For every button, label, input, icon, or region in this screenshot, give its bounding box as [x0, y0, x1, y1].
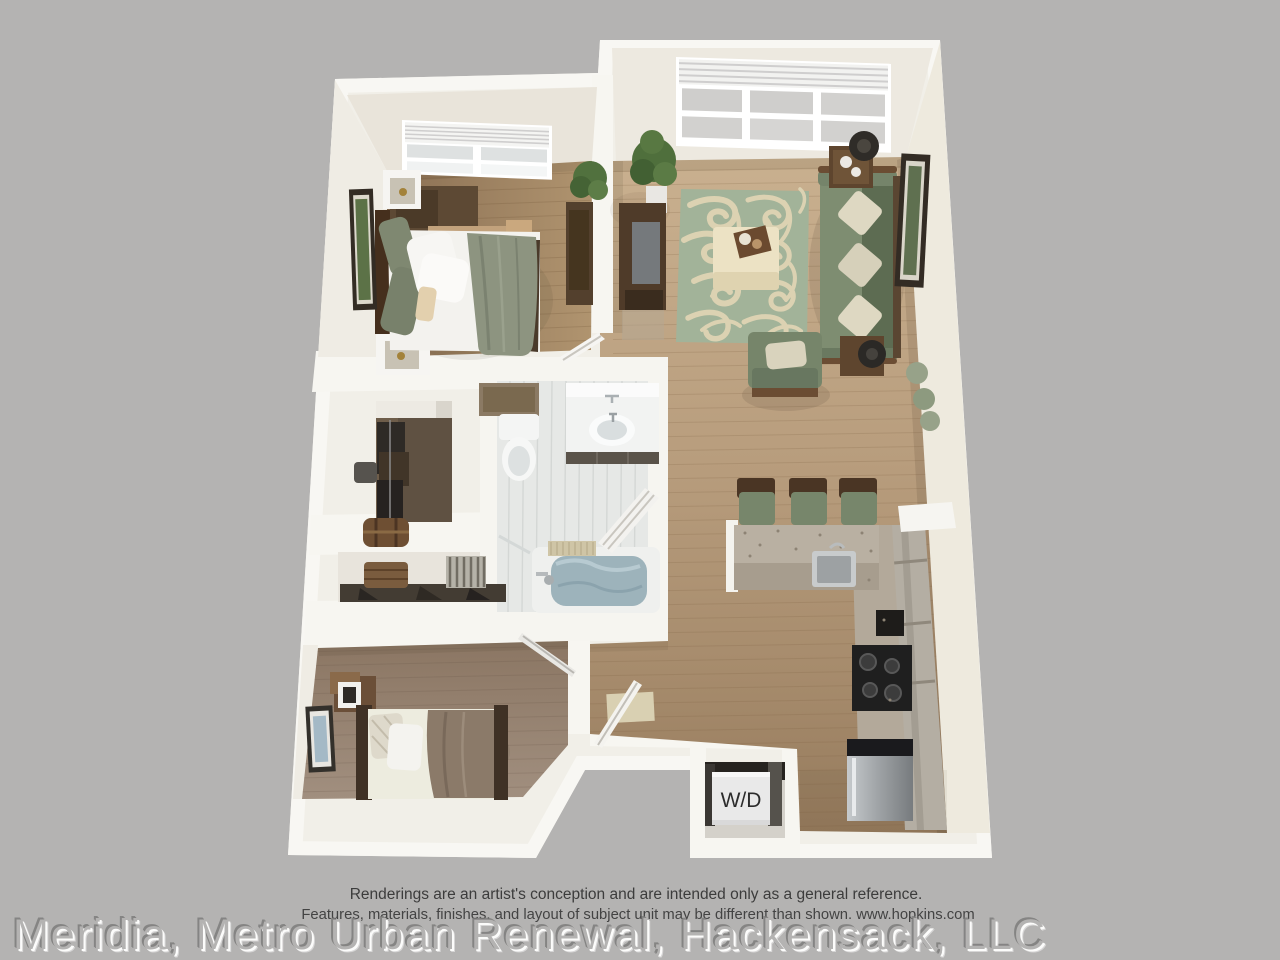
svg-text:Renderings are an artist's con: Renderings are an artist's conception an…	[350, 886, 923, 903]
svg-text:W/D: W/D	[721, 789, 762, 812]
svg-text:Meridia, Metro Urban Renewal,: Meridia, Metro Urban Renewal, Hackensack…	[13, 911, 1047, 959]
